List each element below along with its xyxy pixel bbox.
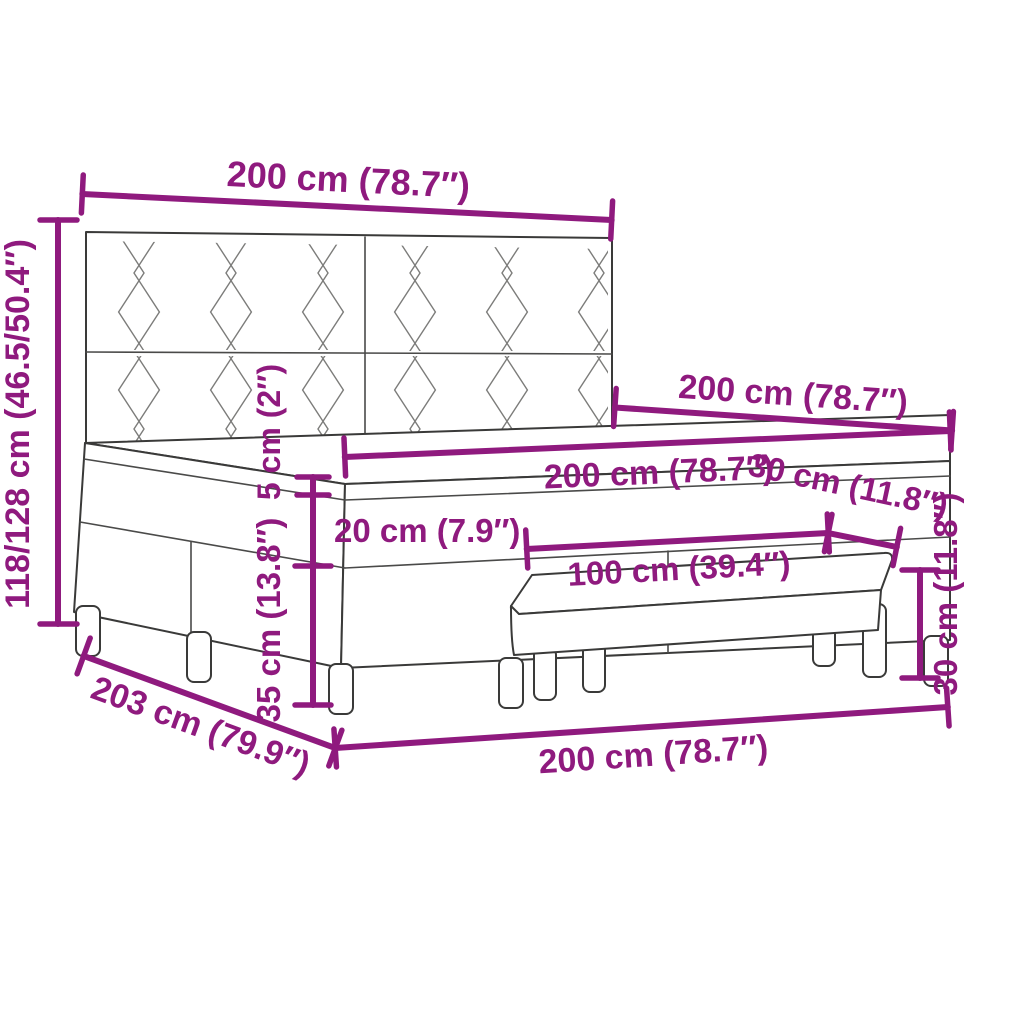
dim-headboard-height: 118/128 cm (46.5/50.4″) [0,220,77,624]
product-dimension-diagram: 200 cm (78.7″) 118/128 cm (46.5/50.4″) 2… [0,0,1024,1024]
headboard-panel-top-left [90,241,361,350]
dim-headboard-width: 200 cm (78.7″) [81,146,614,239]
dim-label-headboard-height: 118/128 cm (46.5/50.4″) [0,239,37,609]
dim-label-mattress-thickness: 20 cm (7.9″) [334,512,520,549]
headboard-panel-top-right [369,245,608,351]
bed-leg [187,632,211,682]
dim-label-bed-width-bottom: 200 cm (78.7″) [537,728,769,781]
dim-bed-width-bottom: 200 cm (78.7″) [334,688,951,795]
bench-leg [534,648,556,700]
dim-label-topper-thickness: 5 cm (2″) [251,364,287,500]
dim-label-headboard-width: 200 cm (78.7″) [226,153,471,206]
dim-label-base-height: 35 cm (13.8″) [250,518,287,723]
bed-leg [499,658,523,708]
dim-label-bench-height: 30 cm (11.8″) [927,493,964,696]
diagram-canvas: 200 cm (78.7″) 118/128 cm (46.5/50.4″) 2… [0,0,1024,1024]
